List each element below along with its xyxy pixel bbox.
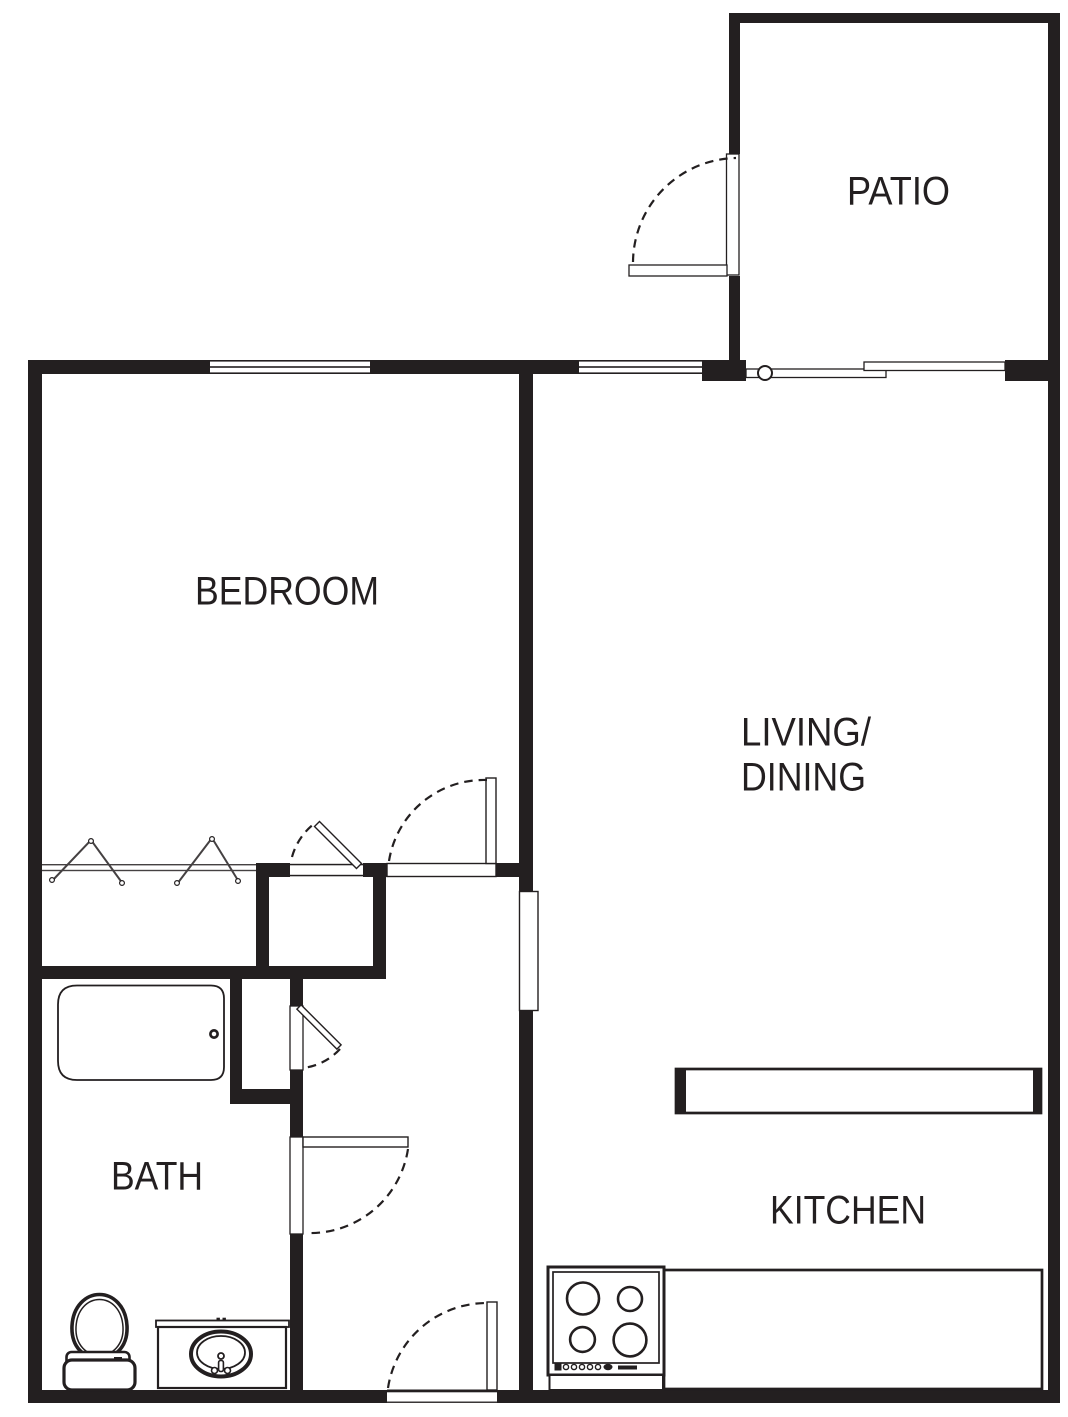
svg-text:BATH: BATH — [111, 1155, 203, 1199]
svg-text:BEDROOM: BEDROOM — [195, 570, 379, 614]
svg-text:LIVING/: LIVING/ — [741, 711, 872, 755]
svg-text:KITCHEN: KITCHEN — [770, 1189, 926, 1233]
svg-text:DINING: DINING — [741, 756, 866, 800]
svg-text:PATIO: PATIO — [847, 170, 950, 214]
